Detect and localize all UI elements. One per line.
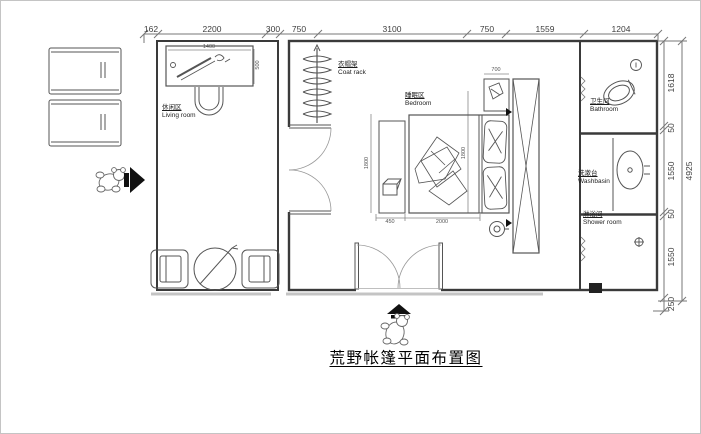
page-title: 荒野帐篷平面布置图 xyxy=(329,346,482,368)
room-label-bathroom-cn: 卫生间 xyxy=(590,98,618,106)
room-label-coatrack-en: Coat rack xyxy=(338,69,366,77)
nightstand xyxy=(484,79,512,227)
entry-direction-arrow xyxy=(124,167,145,193)
dim-bed-length: 2000 xyxy=(436,219,448,225)
interior-double-door xyxy=(289,125,331,214)
coat-rack xyxy=(303,45,331,123)
room-label-living: 休闲区 Living room xyxy=(162,104,196,121)
pillows xyxy=(483,120,507,209)
dim-right-2: 50 xyxy=(666,123,676,132)
dim-top-3: 300 xyxy=(266,24,280,34)
dim-desk-width: 1400 xyxy=(203,44,215,50)
dim-right-5: 1550 xyxy=(666,248,676,267)
bed xyxy=(409,115,509,213)
wardrobe-platform xyxy=(513,79,539,253)
dim-bed-width-right: 1800 xyxy=(461,147,467,159)
dim-bench-width: 450 xyxy=(385,219,394,225)
floorplan-canvas: 162 2200 300 750 3100 750 1559 1204 1618… xyxy=(0,0,701,434)
dim-bed-width-left: 1800 xyxy=(364,157,370,169)
room-label-living-cn: 休闲区 xyxy=(162,104,196,112)
room-label-coatrack: 衣帽架 Coat rack xyxy=(338,61,366,78)
dim-right-3: 1550 xyxy=(666,162,676,181)
dim-top-2: 2200 xyxy=(203,24,222,34)
blanket xyxy=(415,137,467,205)
room-label-washbasin-en: Washbasin xyxy=(578,178,610,186)
room-label-washbasin-cn: 洗漱台 xyxy=(578,170,610,178)
dim-right-6: 250 xyxy=(666,297,676,311)
dim-top-7: 1559 xyxy=(536,24,555,34)
room-label-bathroom: 卫生间 Bathroom xyxy=(590,98,618,115)
dim-nightstand-width: 700 xyxy=(491,67,500,73)
desk xyxy=(166,46,253,86)
room-label-bedroom: 睡眠区 Bedroom xyxy=(405,92,431,109)
washbasin-counter xyxy=(613,138,650,211)
room-label-shower-en: Shower room xyxy=(583,219,622,227)
room-label-bathroom-en: Bathroom xyxy=(590,106,618,114)
room-label-bedroom-en: Bedroom xyxy=(405,100,431,108)
bear-icon-left xyxy=(96,168,125,193)
dim-top-4: 750 xyxy=(292,24,306,34)
dim-top-6: 750 xyxy=(480,24,494,34)
walls xyxy=(151,41,657,296)
shower-valve xyxy=(634,237,644,247)
room-label-shower-cn: 淋浴间 xyxy=(583,211,622,219)
room-label-coatrack-cn: 衣帽架 xyxy=(338,61,366,69)
room-label-living-en: Living room xyxy=(162,112,196,120)
room-label-washbasin: 洗漱台 Washbasin xyxy=(578,170,610,187)
dim-desk-depth: 500 xyxy=(255,60,261,69)
dim-right-total: 4925 xyxy=(684,162,694,181)
dim-top-8: 1204 xyxy=(612,24,631,34)
dim-right-4: 50 xyxy=(666,209,676,218)
desk-chair xyxy=(195,87,223,115)
bed-bench xyxy=(379,121,405,213)
armchairs-and-table xyxy=(151,245,279,290)
dim-top-5: 3100 xyxy=(383,24,402,34)
entry-double-door xyxy=(355,243,443,289)
dim-right-1: 1618 xyxy=(666,74,676,93)
room-label-bedroom-cn: 睡眠区 xyxy=(405,92,431,100)
sun-loungers xyxy=(49,48,121,146)
dim-top-1: 162 xyxy=(144,24,158,34)
room-label-shower: 淋浴间 Shower room xyxy=(583,211,622,228)
